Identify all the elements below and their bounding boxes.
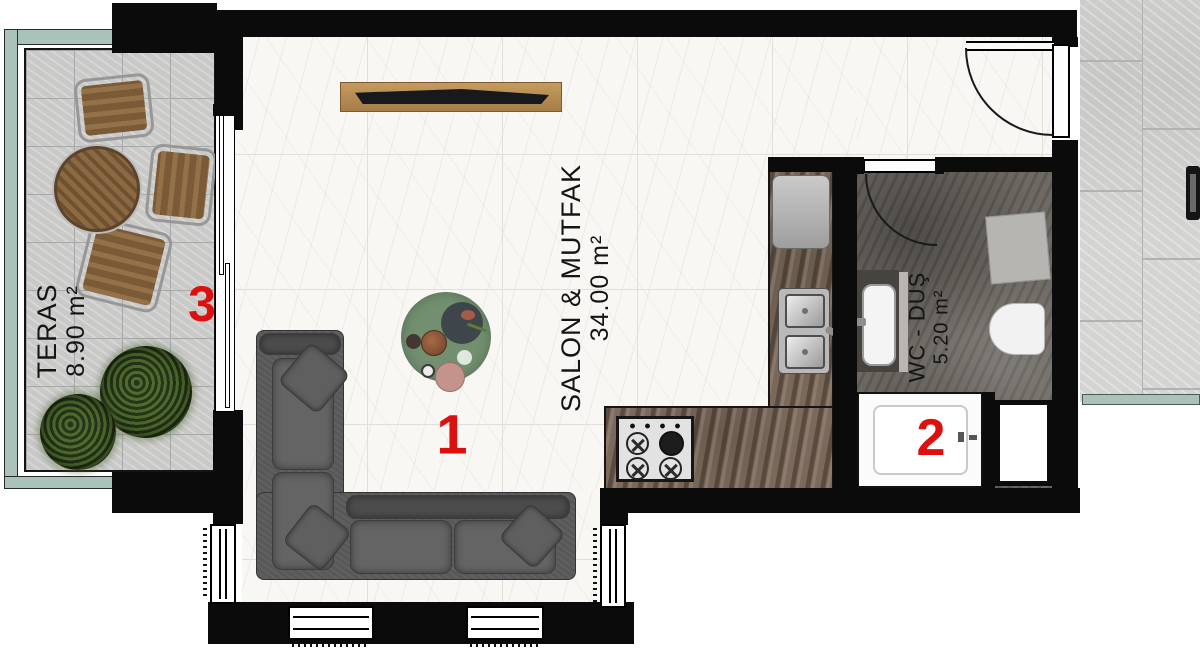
tv [355, 89, 549, 104]
stove-burner [626, 432, 649, 455]
terrace-railing-left [4, 29, 18, 489]
wc-door-stop [855, 157, 864, 174]
terrace-chair-top [73, 72, 155, 144]
label-teras-area: 8.90 m² [62, 283, 90, 378]
label-salon: SALON & MUTFAK 34.00 m² [556, 164, 614, 412]
stove-knobs [625, 422, 687, 430]
bay-window-bottom-right [466, 606, 544, 640]
toilet [989, 303, 1045, 355]
corridor-door-nub [1186, 166, 1200, 220]
wc-door-stop [935, 157, 944, 174]
room-number-teras: 3 [188, 275, 216, 333]
coffee-table-bowl-small [421, 364, 435, 378]
plate-sprig [467, 323, 487, 333]
bay-window-bottom-left [288, 606, 374, 640]
stove-burner [626, 457, 649, 480]
wc-door-leaf [863, 159, 937, 173]
label-wc-name: WC - DUŞ [905, 272, 930, 383]
coffee-table [401, 292, 491, 382]
wc-shaft [995, 400, 1052, 486]
wall-wc-top-left [768, 157, 860, 172]
fridge [772, 175, 830, 249]
entrance-door-lintel [966, 41, 1054, 51]
label-teras-name: TERAS [32, 283, 62, 378]
entry-hall-floor [857, 37, 1052, 160]
stove-burner [659, 431, 684, 456]
wall-bay-right-stub [600, 511, 628, 525]
label-salon-area: 34.00 m² [586, 164, 614, 412]
coffee-table-plate [441, 302, 483, 344]
floor-plan: SALON & MUTFAK 34.00 m² TERAS 8.90 m² WC… [0, 0, 1200, 653]
corridor-railing [1082, 394, 1200, 405]
wall-bay-bottom [208, 602, 634, 644]
wc-shower-shelf [985, 212, 1051, 285]
wall-top-main [217, 10, 1077, 37]
coffee-table-bowl [406, 334, 421, 349]
coffee-table-plate-salmon [435, 362, 465, 392]
label-salon-name: SALON & MUTFAK [556, 164, 586, 412]
corridor-door-nub-inner [1190, 174, 1196, 212]
wall-terrace-bottom [112, 472, 243, 513]
sink-bowl-bottom [785, 335, 825, 369]
plate-decor [461, 310, 475, 320]
coffee-table-pot [421, 330, 447, 356]
wc-washbasin [862, 284, 896, 366]
sink-bowl-top [785, 294, 825, 328]
stove [616, 416, 694, 482]
sliding-door-pane [219, 115, 224, 275]
shower-tray-drain [969, 435, 977, 440]
sofa-cushion [350, 520, 452, 574]
terrace-round-table [54, 146, 140, 232]
shower-tray-drain [958, 432, 964, 442]
coffee-table-plate-mint [457, 350, 472, 365]
terrace-plant-small [40, 394, 116, 470]
sliding-door-top-cap [213, 104, 239, 116]
entrance-door-leaf [1052, 44, 1070, 138]
wall-shower-tray-right [983, 392, 995, 488]
sofa-armrest-top [259, 333, 341, 355]
bay-window-right [600, 524, 626, 608]
wall-right-main [1052, 140, 1078, 513]
terrace-railing-top [4, 29, 114, 45]
terrace-chair-right [144, 143, 218, 227]
terrace-sliding-door [215, 112, 235, 412]
terrace-railing-bottom [4, 476, 114, 489]
tv-console [340, 82, 562, 112]
bay-window-left [210, 524, 236, 604]
room-number-wc: 2 [917, 408, 946, 468]
label-wc: WC - DUŞ 5.20 m² [905, 272, 952, 383]
wall-terrace-top-block [112, 3, 217, 53]
kitchen-sink [778, 288, 830, 374]
sliding-door-pane [225, 263, 230, 408]
wall-bottom-right [600, 488, 1080, 513]
wall-kitchen-wc-divider [833, 170, 857, 490]
corridor-floor [1080, 0, 1142, 402]
room-number-salon: 1 [436, 402, 467, 467]
wall-wc-top-right [940, 157, 1052, 172]
label-wc-area: 5.20 m² [930, 272, 952, 383]
stove-burner [659, 457, 682, 480]
label-teras: TERAS 8.90 m² [32, 283, 90, 378]
